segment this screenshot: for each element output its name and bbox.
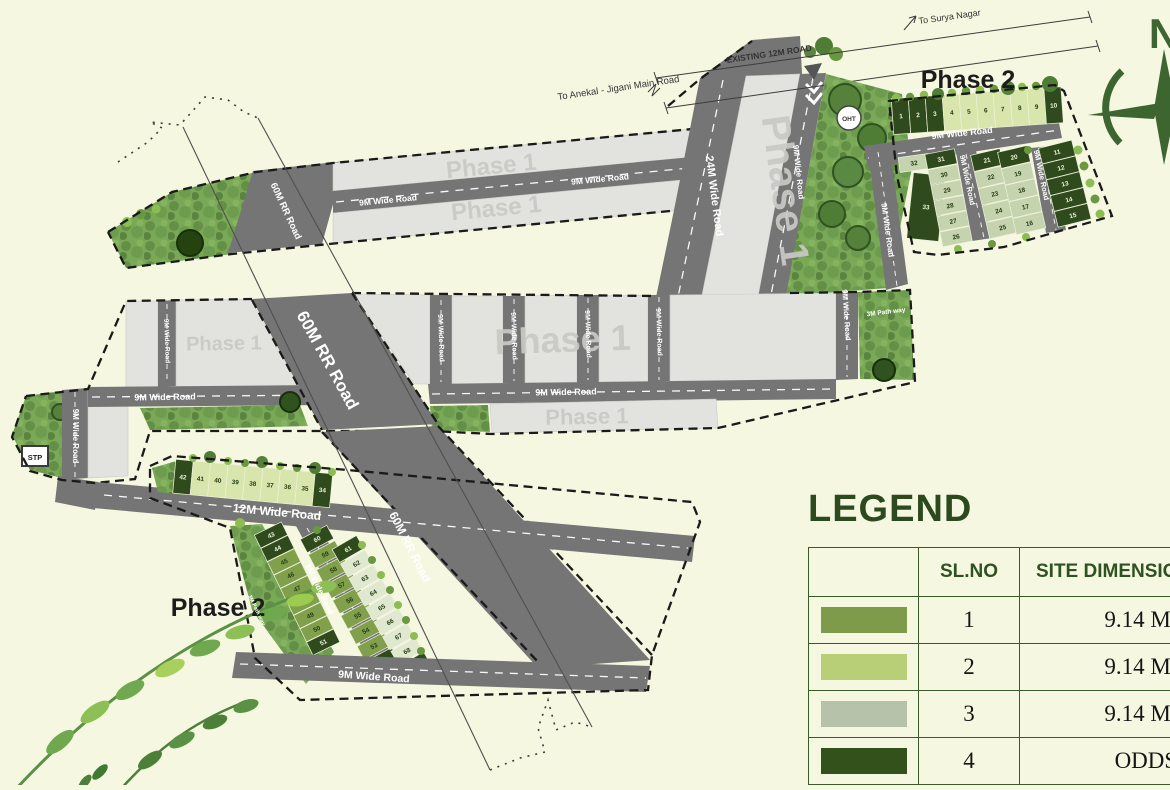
legend-slno: 3 — [919, 691, 1020, 738]
plot-number: 38 — [249, 480, 257, 488]
road-label-9m: 9M Wide Road — [71, 409, 80, 464]
plot-number: 42 — [179, 474, 187, 482]
legend-slno: 4 — [919, 738, 1020, 785]
plot-site: 38 — [242, 466, 263, 501]
plot-site: 42 — [173, 459, 194, 494]
compass-n-label: N — [1149, 10, 1170, 57]
plot-number: 36 — [284, 484, 292, 492]
plot-site: 37 — [260, 467, 281, 502]
phase1-watermark: Phase 1 — [186, 332, 262, 355]
stp-label: STP — [28, 453, 43, 462]
legend-header-swatch — [809, 548, 919, 597]
road-label-9m: 9M Wide Road — [134, 391, 196, 402]
legend-header-slno: SL.NO — [919, 548, 1020, 597]
north-compass-icon — [1088, 49, 1170, 165]
legend-row: 2 9.14 M X 13. — [809, 644, 1170, 691]
plot-number: 34 — [318, 487, 326, 495]
plot-number: 35 — [301, 485, 309, 493]
legend-header-row: SL.NO SITE DIMENSIONS — [809, 548, 1170, 597]
oht-label: OHT — [842, 116, 856, 123]
plot-number: 40 — [214, 477, 222, 485]
plot-number: 10 — [1050, 102, 1058, 110]
label-to-surya: To Surya Nagar — [918, 7, 981, 26]
legend-header-dims: SITE DIMENSIONS — [1020, 548, 1170, 597]
legend-dims: 9.14 M X 12. — [1020, 597, 1170, 644]
plot-site: 36 — [277, 469, 298, 504]
plot-site: 1 — [891, 97, 910, 134]
tree-icon — [833, 157, 863, 187]
legend-swatch-2 — [821, 654, 907, 680]
plot-site: 41 — [190, 461, 211, 496]
legend-swatch-4 — [821, 748, 907, 774]
plot-site: 6 — [976, 92, 995, 129]
phase1-watermark: Phase 1 — [545, 403, 629, 430]
label-to-anekal: To Anekal - Jigani Main Road — [557, 74, 680, 103]
legend-dims: ODDS SIT — [1020, 738, 1170, 785]
legend-row: 4 ODDS SIT — [809, 738, 1170, 785]
plot-number: 33 — [922, 204, 930, 212]
plot-site: 3 — [925, 95, 944, 132]
legend-title: LEGEND — [808, 488, 1170, 531]
site-plan-page: { "labels": { "phase1": "Phase 1", "phas… — [0, 0, 1170, 785]
direction-arrow-icon — [904, 16, 916, 30]
plot-site: 10 — [1044, 87, 1063, 124]
plot-number: 32 — [910, 160, 918, 168]
legend-table: SL.NO SITE DIMENSIONS 1 9.14 M X 12. 2 9… — [808, 547, 1170, 785]
plot-site: 7 — [993, 90, 1012, 127]
tree-icon — [280, 392, 300, 412]
tree-icon — [177, 230, 203, 256]
bush-icon — [152, 205, 161, 214]
plot-site: 40 — [208, 462, 229, 497]
plot-site: 8 — [1010, 89, 1029, 126]
plot-site: 9 — [1027, 88, 1046, 125]
plot-site: 2 — [908, 96, 927, 133]
plot-number: 41 — [196, 476, 204, 484]
plot-number: 37 — [266, 482, 274, 490]
legend-dims: 9.14 M X 13. — [1020, 644, 1170, 691]
plot-site: 35 — [295, 471, 316, 506]
tree-icon — [819, 201, 845, 227]
legend-panel: LEGEND SL.NO SITE DIMENSIONS 1 9.14 M X … — [808, 488, 1170, 785]
legend-swatch-3 — [821, 701, 907, 727]
plot-site: 39 — [225, 464, 246, 499]
tree-icon — [873, 359, 895, 381]
plot-site: 4 — [942, 94, 961, 131]
legend-dims: 9.14 M X 15. — [1020, 691, 1170, 738]
bush-icon — [829, 47, 843, 61]
road-label-9m: 9M Wide Road — [535, 386, 597, 397]
plot-site: 34 — [312, 472, 333, 507]
legend-slno: 1 — [919, 597, 1020, 644]
legend-swatch-1 — [821, 607, 907, 633]
legend-slno: 2 — [919, 644, 1020, 691]
tree-icon — [846, 226, 870, 250]
plot-site: 5 — [959, 93, 978, 130]
phase2-ne-title: Phase 2 — [921, 66, 1016, 94]
plot-number: 39 — [231, 479, 239, 487]
legend-row: 3 9.14 M X 15. — [809, 691, 1170, 738]
legend-row: 1 9.14 M X 12. — [809, 597, 1170, 644]
